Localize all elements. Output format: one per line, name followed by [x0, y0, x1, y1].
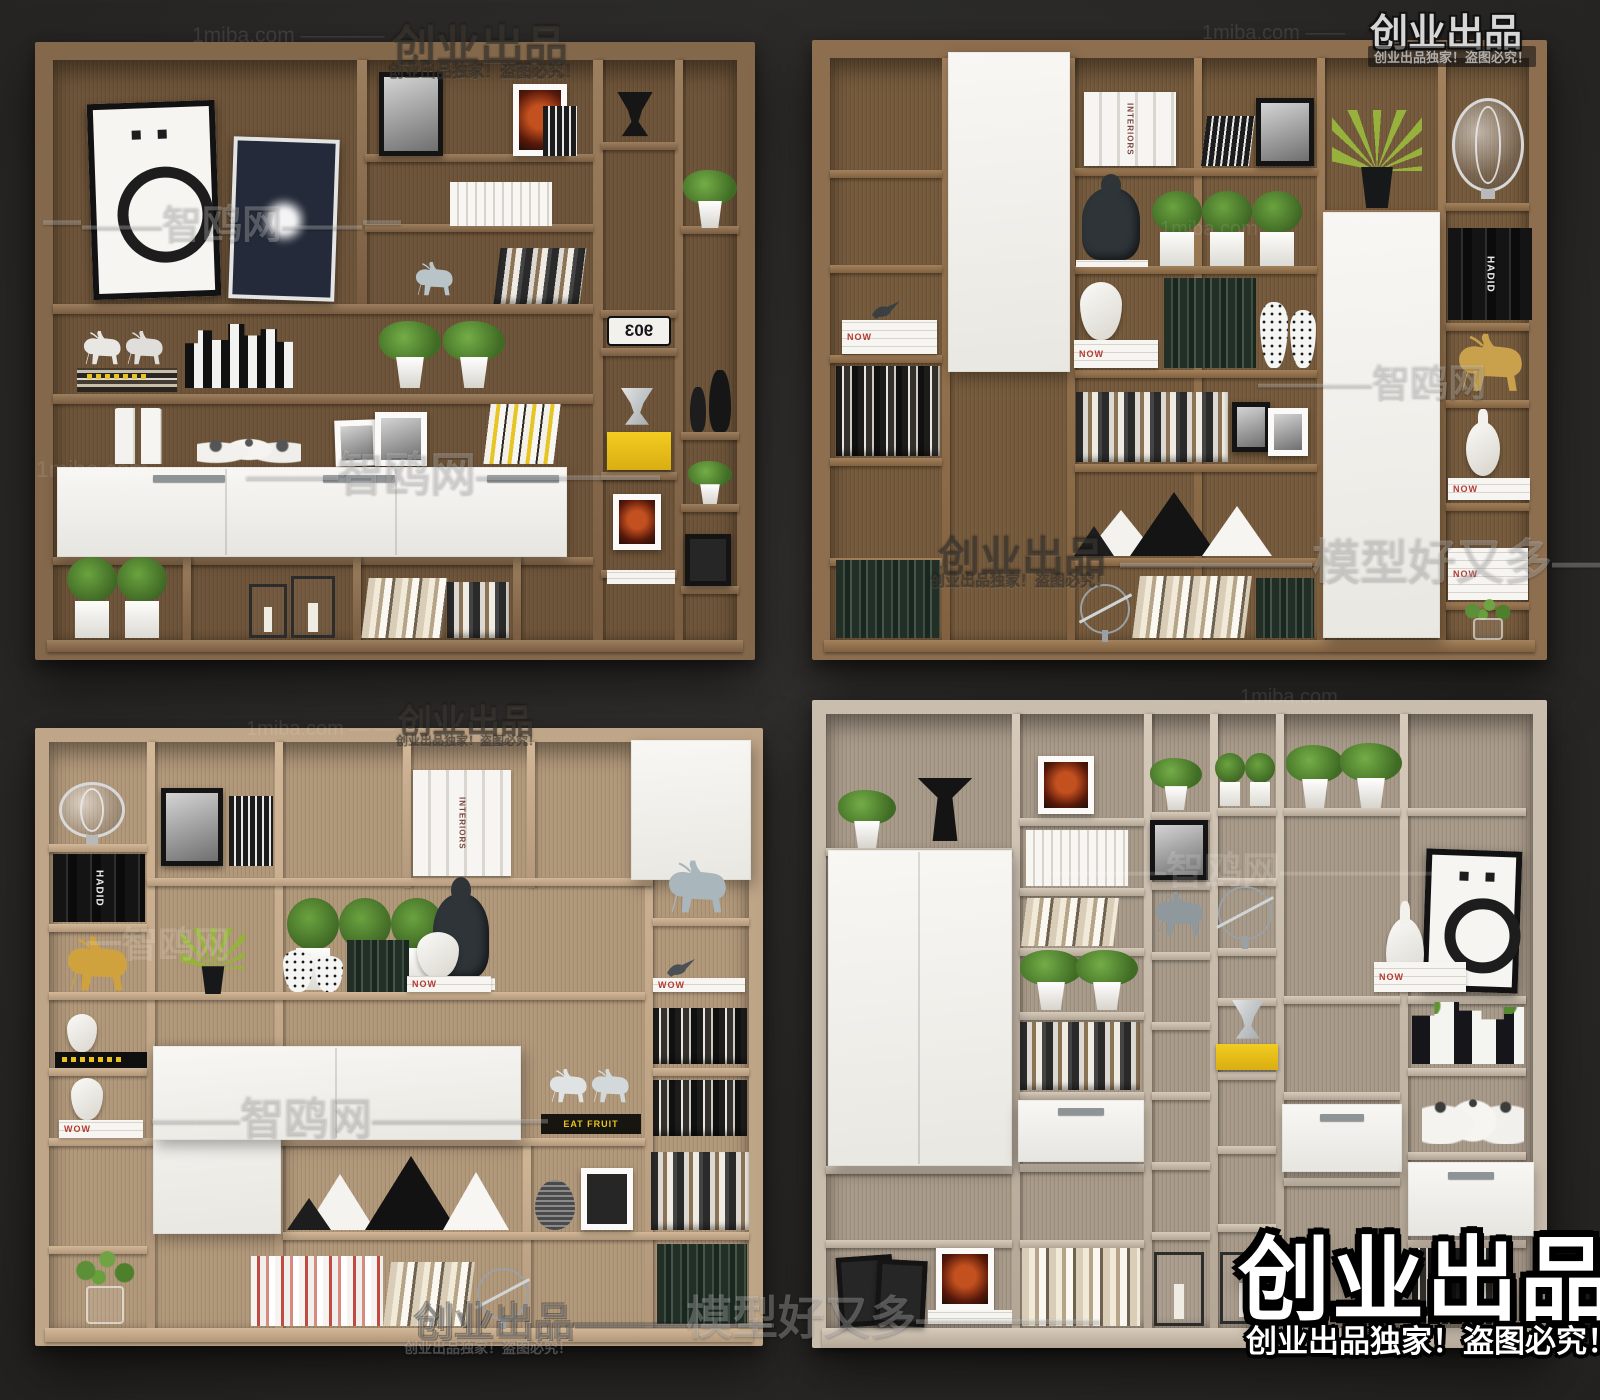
shelf-board [1408, 1068, 1526, 1076]
shelf-board [1218, 808, 1276, 816]
shelf-board [1152, 1022, 1210, 1030]
base-board [47, 640, 743, 652]
door-seam [918, 852, 920, 1164]
potted-plant [383, 328, 437, 388]
shelf-board [1020, 888, 1144, 896]
planter-box [69, 564, 115, 638]
shelf-divider [183, 557, 191, 642]
shelf-board [1218, 1146, 1276, 1154]
potted-plant [1154, 764, 1198, 810]
drawer-handle [1320, 1114, 1364, 1121]
bookcase-bottom-left: HADID WOW INTERIORS NOW WOW EAT FRUIT [35, 728, 763, 1346]
photo-frame [1232, 402, 1270, 452]
shelf-board [1218, 1224, 1276, 1232]
shelf-board [681, 432, 739, 440]
shelf-board [1218, 948, 1276, 956]
drawer-handle [323, 475, 395, 482]
books-row [1022, 1248, 1140, 1326]
photo-frame [161, 788, 223, 866]
book-stack-now: NOW [1374, 962, 1466, 992]
books-row [1412, 1248, 1492, 1324]
shelf-board [1218, 1072, 1276, 1080]
shelf-board [681, 586, 739, 594]
gourd-vase-trio [1422, 1076, 1524, 1144]
photo-frame [581, 1168, 633, 1230]
shelf-board [1408, 1152, 1526, 1160]
cabinet-door [1323, 212, 1440, 638]
shelf-divider [1276, 714, 1284, 1328]
gold-deer-figurine [61, 936, 133, 992]
gold-deer-figurine [1454, 330, 1526, 396]
shelf-divider [1400, 714, 1408, 1328]
bookcase-top-left: 903 [35, 42, 755, 660]
shelf-divider [1144, 714, 1152, 1328]
shelf-board [1152, 952, 1210, 960]
drawer-seam [225, 469, 227, 555]
black-bottle-vases [687, 370, 733, 432]
deer-bookend [547, 1066, 589, 1106]
books-row-green [347, 940, 409, 992]
shelf-board [1020, 1012, 1144, 1020]
potted-plant [691, 466, 729, 504]
candle-lantern [1154, 1252, 1204, 1326]
silver-deer-figurine [661, 860, 733, 914]
bird-figurine [870, 298, 902, 320]
books-row [836, 366, 940, 456]
book-stack-now: NOW [1448, 478, 1530, 500]
books-row [653, 1080, 747, 1136]
photo-frame [1150, 820, 1208, 880]
photo-frame [334, 419, 380, 467]
base-board [45, 1328, 753, 1342]
shelf-board [1284, 996, 1400, 1004]
shelf-board [1284, 1092, 1400, 1100]
shelf-board [1020, 1092, 1144, 1100]
shelf-divider [1210, 714, 1218, 1328]
white-books-row [450, 182, 552, 226]
compass-ornament [1218, 886, 1272, 940]
shelf-board [1218, 878, 1276, 886]
book-stack [928, 1310, 1012, 1324]
books-row [1201, 116, 1255, 166]
candlestick-group [185, 324, 293, 388]
deer-figurine [413, 254, 455, 304]
shelf-board [1446, 203, 1529, 211]
shelf-board [49, 924, 147, 932]
deer-bookend [589, 1066, 631, 1106]
shelf-board [1284, 808, 1400, 816]
photo-frame [613, 494, 661, 550]
shelf-board [1408, 1240, 1526, 1248]
book-stack-now: NOW [407, 976, 491, 992]
candle-lantern [291, 576, 335, 638]
photo-frame [375, 412, 427, 466]
book-set-hadid: HADID [1448, 228, 1532, 320]
book-set-interiors: INTERIORS [1084, 92, 1176, 166]
compass-ornament [1080, 584, 1130, 634]
books-row [251, 1256, 383, 1326]
egg-vase [535, 1180, 575, 1230]
bookcase-bottom-right: NOW [812, 700, 1547, 1348]
bookcase-top-right: NOW INTERIORS NOW HADID NOW NOW [812, 40, 1547, 660]
shelf-board [1020, 1240, 1144, 1248]
shelf-board [1020, 818, 1144, 826]
potted-plant [447, 328, 501, 388]
potted-plant [842, 796, 892, 848]
plant-in-glass-vase [65, 1254, 141, 1324]
books-row [1076, 392, 1228, 462]
cabinet-door [828, 850, 1012, 1166]
desk-globe [1452, 98, 1524, 192]
shelf-board [1075, 370, 1317, 378]
books-row [229, 796, 273, 866]
shelf-board [1075, 558, 1317, 566]
books-row [494, 248, 587, 304]
shelf-divider [353, 557, 361, 642]
books-row-green [836, 560, 940, 638]
potted-plant [1290, 752, 1340, 808]
boxwood-plant [1204, 198, 1250, 266]
grass-plant [181, 928, 245, 994]
shelf-board [1152, 1232, 1210, 1240]
drawer-handle [1448, 1172, 1494, 1179]
books-row-green [657, 1244, 747, 1324]
potted-plant [687, 176, 733, 228]
books-row [653, 1008, 747, 1064]
pebble-sculptures [197, 426, 301, 464]
candle-lantern [249, 584, 287, 638]
books-row [383, 1262, 475, 1326]
shelf-board [1408, 808, 1526, 816]
shelf-board [830, 355, 942, 363]
drawer-handle [153, 475, 225, 482]
shelf-board [53, 394, 593, 404]
boxwood-plant [1216, 758, 1244, 806]
boxwood-plant [1254, 198, 1300, 266]
bird-figurine [665, 956, 697, 978]
drawer-handle [487, 475, 559, 482]
yellow-box [1216, 1044, 1278, 1070]
photo-frame [936, 1248, 994, 1310]
shelf-board [1152, 812, 1210, 820]
shelf-board [1152, 1092, 1210, 1100]
book-set-interiors: INTERIORS [413, 770, 511, 876]
deer-bookend [81, 326, 123, 370]
drawer-seam [395, 469, 397, 555]
books-row [447, 582, 509, 638]
books-row [543, 106, 577, 156]
yucca-plant [1332, 110, 1422, 208]
book-stack-now: NOW [842, 320, 937, 354]
number-sign: 903 [607, 316, 671, 346]
book-set-hadid: HADID [53, 854, 145, 922]
candle-lantern [1220, 1252, 1268, 1324]
book-stack [1076, 260, 1148, 267]
book-stack-now: NOW [1448, 548, 1528, 600]
book-stack-wow: WOW [59, 1120, 143, 1138]
shelf-board [147, 878, 653, 886]
photo-frame [1038, 756, 1094, 814]
books-row [651, 1152, 749, 1230]
books-row [361, 578, 448, 638]
branch-in-vase [1456, 602, 1516, 640]
shelf-board [653, 918, 749, 926]
shelf-board [1446, 400, 1529, 408]
shelf-board [826, 1240, 1012, 1248]
shelf-board [653, 1068, 749, 1076]
shelf-board [601, 472, 677, 480]
drawer-handle [1058, 1108, 1104, 1115]
photo-frame [379, 72, 443, 156]
boxwood-plant [1246, 758, 1274, 806]
boxwood-plant [1154, 198, 1200, 266]
product-collage: 903 NOW [0, 0, 1600, 1400]
shelf-board [1152, 1162, 1210, 1170]
photo-frame [874, 1259, 927, 1328]
planter-box [119, 564, 165, 638]
books-row-green [1164, 278, 1256, 368]
books-row-yellow [483, 404, 560, 464]
cabinet-door [153, 1046, 521, 1140]
shelf-board [1152, 882, 1210, 890]
book-stack [607, 570, 675, 584]
potted-plant [1024, 956, 1078, 1010]
shelf-board [1020, 1164, 1144, 1172]
deer-bookend [123, 326, 165, 370]
framed-poster-navy [228, 136, 340, 302]
book-stack-wow: WOW [653, 978, 745, 992]
cabinet-door [948, 52, 1070, 372]
shelf-board [601, 348, 677, 356]
shelf-board [826, 1166, 1012, 1174]
white-gourd-vase [1466, 422, 1500, 476]
base-board [824, 640, 1535, 652]
book-eat-fruit: EAT FRUIT [541, 1114, 641, 1134]
shelf-board [830, 170, 942, 178]
books-row-green [1256, 578, 1314, 638]
shelf-board [53, 304, 593, 314]
shelf-divider [357, 60, 367, 306]
door-seam [335, 1048, 337, 1138]
shelf-board [49, 992, 645, 1000]
shelf-board [49, 844, 147, 852]
shelf-board [1075, 464, 1317, 472]
framed-poster-o-face [87, 100, 222, 300]
shelf-board [1075, 266, 1317, 274]
silver-deer-figurine [1152, 890, 1206, 938]
photo-frame [1256, 98, 1314, 166]
cabinet-panel [631, 740, 751, 880]
book-stack-now: NOW [1074, 340, 1158, 368]
shelf-divider [527, 742, 535, 888]
shelf-divider [147, 742, 155, 1332]
shelf-divider [275, 742, 283, 1332]
base-board [822, 1328, 1537, 1348]
shelf-board [681, 504, 739, 512]
shelf-board [601, 142, 677, 150]
book-stack-yellow-text [55, 1052, 147, 1068]
shelf-board [1408, 996, 1526, 1004]
shelf-divider [513, 557, 521, 642]
yellow-box [607, 432, 671, 470]
bronze-statue [1082, 188, 1140, 260]
shelf-board [1284, 1178, 1400, 1186]
shelf-board [283, 1232, 749, 1240]
book-spine-marks [87, 374, 147, 379]
potted-plant [1344, 750, 1398, 808]
shelf-board [830, 458, 942, 466]
potted-plant [1080, 956, 1134, 1010]
shelf-board [1446, 503, 1529, 511]
books-row [1020, 1022, 1140, 1090]
compass-ornament [477, 1268, 529, 1320]
shelf-board [49, 1068, 147, 1076]
photo-frame [1268, 408, 1308, 456]
white-bottles [113, 408, 163, 464]
book-stack [77, 368, 177, 392]
shelf-board [830, 265, 942, 273]
books-row [1132, 576, 1252, 638]
books-row [1021, 898, 1119, 946]
shelf-divider [403, 742, 411, 888]
photo-frame [685, 534, 731, 586]
shelf-divider [1012, 714, 1020, 1328]
desk-globe [59, 782, 125, 838]
white-books-row [1026, 830, 1128, 886]
